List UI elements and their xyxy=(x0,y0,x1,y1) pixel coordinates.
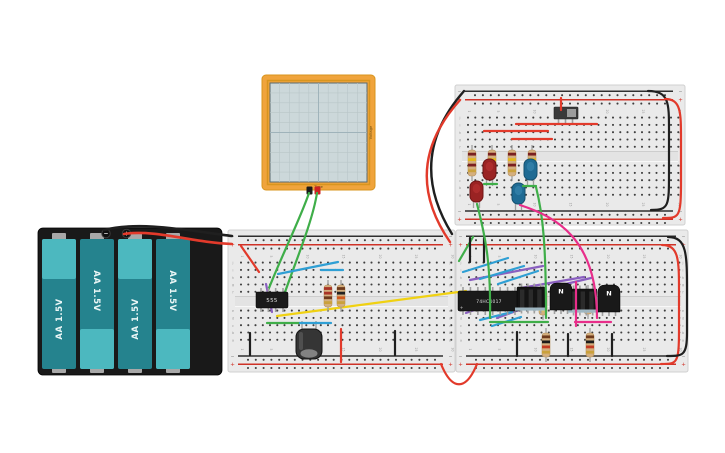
ic-label: 555 xyxy=(266,298,278,304)
column-number: 10 xyxy=(305,255,309,259)
column-number: 20 xyxy=(606,255,610,259)
resistor[interactable] xyxy=(542,328,550,362)
voltage-axis-label: Voltage xyxy=(369,125,373,139)
row-letter: g xyxy=(682,283,684,287)
battery-cap xyxy=(42,239,76,279)
row-letter: i xyxy=(460,124,461,128)
column-number: 25 xyxy=(414,348,418,352)
row-letter: b xyxy=(449,331,451,335)
rail-polarity-mark: − xyxy=(458,209,462,214)
battery-cap xyxy=(80,329,114,369)
led-highlight xyxy=(473,184,481,193)
column-number: 10 xyxy=(533,255,537,259)
row-letter: a xyxy=(232,338,234,342)
resistor-band xyxy=(468,158,476,161)
switch-pin xyxy=(558,119,560,123)
row-letter: d xyxy=(449,317,451,321)
row-letter: d xyxy=(682,317,684,321)
resistor[interactable] xyxy=(468,145,476,181)
resistor-band xyxy=(542,351,550,354)
transistor-npn[interactable]: N xyxy=(550,283,572,314)
row-letter: g xyxy=(449,283,451,287)
row-letter: i xyxy=(461,269,462,273)
resistor-band xyxy=(337,296,345,299)
row-letter: i xyxy=(450,269,451,273)
row-letter: h xyxy=(460,276,462,280)
canvas-background xyxy=(0,0,725,453)
resistor-band xyxy=(337,292,345,295)
rail-polarity-mark: − xyxy=(682,354,686,359)
column-number: 30 xyxy=(450,255,454,259)
column-number: 15 xyxy=(570,348,574,352)
column-number: 1 xyxy=(467,204,471,206)
rail-polarity-mark: + xyxy=(457,217,462,223)
switch-pin xyxy=(572,119,574,123)
resistor-band xyxy=(508,158,516,161)
row-letter: c xyxy=(449,324,451,328)
resistor-band xyxy=(324,301,332,304)
row-letter: h xyxy=(459,131,461,135)
resistor-band xyxy=(542,335,550,338)
rail-polarity-mark: + xyxy=(458,243,463,249)
capacitor-end xyxy=(301,349,318,357)
column-number: 20 xyxy=(605,110,609,114)
battery-cell: AA 1.5V xyxy=(118,233,152,373)
row-letter: j xyxy=(460,261,462,265)
row-letter: a xyxy=(460,338,462,342)
column-number: 5 xyxy=(496,204,500,206)
column-number: 30 xyxy=(678,255,682,259)
rail-polarity-mark: + xyxy=(448,243,453,249)
column-number: 1 xyxy=(467,111,471,113)
row-letter: b xyxy=(459,186,461,190)
battery-label: AA 1.5V xyxy=(167,270,177,311)
column-number: 10 xyxy=(532,110,536,114)
resistor-band xyxy=(337,287,345,290)
dip-strip xyxy=(515,308,547,311)
row-letter: i xyxy=(233,269,234,273)
rail-polarity-mark: − xyxy=(459,354,463,359)
column-number: 25 xyxy=(414,255,418,259)
row-letter: g xyxy=(460,283,462,287)
resistor-band xyxy=(508,164,516,167)
column-number: 15 xyxy=(342,255,346,259)
row-letter: h xyxy=(449,276,451,280)
row-letter: e xyxy=(682,309,684,313)
rail-polarity-mark: − xyxy=(459,235,463,240)
column-number: 25 xyxy=(641,203,645,207)
resistor-band xyxy=(337,301,345,304)
rail-polarity-mark: + xyxy=(458,362,463,368)
led-highlight xyxy=(515,186,523,195)
row-letter: b xyxy=(460,331,462,335)
column-number: 5 xyxy=(496,111,500,113)
column-number: 20 xyxy=(605,203,609,207)
terminal-sign: − xyxy=(104,232,109,238)
resistor-band xyxy=(542,340,550,343)
resistor-band xyxy=(468,164,476,167)
column-number: 1 xyxy=(240,349,244,351)
row-letter: g xyxy=(459,138,461,142)
resistor-band xyxy=(468,169,476,172)
resistor-band xyxy=(324,287,332,290)
resistor[interactable] xyxy=(586,328,594,362)
row-letter: a xyxy=(682,338,684,342)
circuit-scene: −−++−−++jjiihhggffeeddccbbaa151015202530… xyxy=(0,0,725,453)
column-number: 5 xyxy=(497,256,501,258)
column-number: 10 xyxy=(533,348,537,352)
row-letter: e xyxy=(232,309,234,313)
row-letter: a xyxy=(459,193,461,197)
row-letter: d xyxy=(459,172,461,176)
switch-pin xyxy=(565,119,567,123)
rail-polarity-mark: − xyxy=(679,90,683,95)
rail-polarity-mark: − xyxy=(682,235,686,240)
resistor-band xyxy=(542,346,550,349)
column-number: 30 xyxy=(450,348,454,352)
rail-polarity-mark: − xyxy=(231,354,235,359)
row-letter: a xyxy=(449,338,451,342)
battery-label: AA 1.5V xyxy=(91,270,101,311)
transistor-label: N xyxy=(558,288,563,296)
battery-cell: AA 1.5V xyxy=(156,233,190,373)
column-number: 20 xyxy=(378,255,382,259)
dip-ridge xyxy=(537,290,541,308)
resistor-band xyxy=(508,153,516,156)
rail-polarity-mark: + xyxy=(681,362,686,368)
row-letter: b xyxy=(232,331,234,335)
battery-cell: AA 1.5V xyxy=(80,233,114,373)
resistor-band xyxy=(586,351,594,354)
resistor[interactable] xyxy=(508,145,516,181)
resistor-band xyxy=(586,340,594,343)
column-number: 20 xyxy=(378,348,382,352)
row-letter: h xyxy=(682,276,684,280)
rail-polarity-mark: + xyxy=(678,98,683,104)
row-letter: g xyxy=(232,283,234,287)
ic-dip-unlabeled[interactable] xyxy=(515,284,547,314)
circuit-canvas: −−++−−++jjiihhggffeeddccbbaa151015202530… xyxy=(0,0,725,453)
row-letter: i xyxy=(683,269,684,273)
row-letter: d xyxy=(232,317,234,321)
rail-polarity-mark: − xyxy=(449,354,453,359)
column-number: 25 xyxy=(642,348,646,352)
row-letter: c xyxy=(232,324,234,328)
row-letter: h xyxy=(232,276,234,280)
switch-knob[interactable] xyxy=(567,109,576,117)
column-number: 1 xyxy=(240,256,244,258)
row-letter: e xyxy=(459,164,461,168)
battery-cap xyxy=(156,329,190,369)
transistor-npn[interactable]: N xyxy=(598,285,620,316)
column-number: 15 xyxy=(570,255,574,259)
column-number: 5 xyxy=(497,349,501,351)
row-letter: j xyxy=(449,261,451,265)
dip-ridge xyxy=(581,292,585,310)
column-number: 20 xyxy=(606,348,610,352)
transistor-label: N xyxy=(606,290,611,298)
battery-pack[interactable]: AA 1.5VAA 1.5VAA 1.5VAA 1.5V−+ xyxy=(38,228,222,375)
column-number: 15 xyxy=(569,203,573,207)
ic-pin1-mark: + xyxy=(460,305,463,310)
resistor-band xyxy=(468,153,476,156)
resistor-band xyxy=(508,169,516,172)
rail-polarity-mark: + xyxy=(230,362,235,368)
resistor-band xyxy=(586,335,594,338)
battery-label: AA 1.5V xyxy=(55,298,65,339)
row-letter: j xyxy=(459,116,461,120)
row-letter: b xyxy=(682,331,684,335)
battery-cap xyxy=(118,239,152,279)
resistor-band xyxy=(528,153,536,156)
led-highlight xyxy=(527,162,535,171)
row-letter: c xyxy=(460,324,462,328)
row-letter: j xyxy=(232,261,234,265)
rail-polarity-mark: + xyxy=(678,217,683,223)
column-number: 25 xyxy=(641,110,645,114)
resistor-band xyxy=(586,346,594,349)
rail-polarity-mark: + xyxy=(448,362,453,368)
dip-ridge xyxy=(589,292,593,310)
resistor-band xyxy=(324,296,332,299)
row-letter: e xyxy=(449,309,451,313)
dip-ridge xyxy=(520,290,524,308)
resistor-band xyxy=(324,292,332,295)
dip-ridge xyxy=(529,290,533,308)
battery-label: AA 1.5V xyxy=(131,298,141,339)
row-letter: c xyxy=(682,324,684,328)
column-number: 25 xyxy=(642,255,646,259)
capacitor-highlight xyxy=(299,332,303,350)
column-number: 1 xyxy=(468,349,472,351)
column-number: 10 xyxy=(532,203,536,207)
resistor-band xyxy=(488,153,496,156)
row-letter: d xyxy=(460,317,462,321)
oscilloscope[interactable]: TimeVoltage xyxy=(262,75,375,195)
column-number: 5 xyxy=(269,256,273,258)
row-letter: c xyxy=(459,179,461,183)
led-highlight xyxy=(486,162,494,171)
row-letter: j xyxy=(682,261,684,265)
battery-cell: AA 1.5V xyxy=(42,233,76,373)
column-number: 5 xyxy=(269,349,273,351)
